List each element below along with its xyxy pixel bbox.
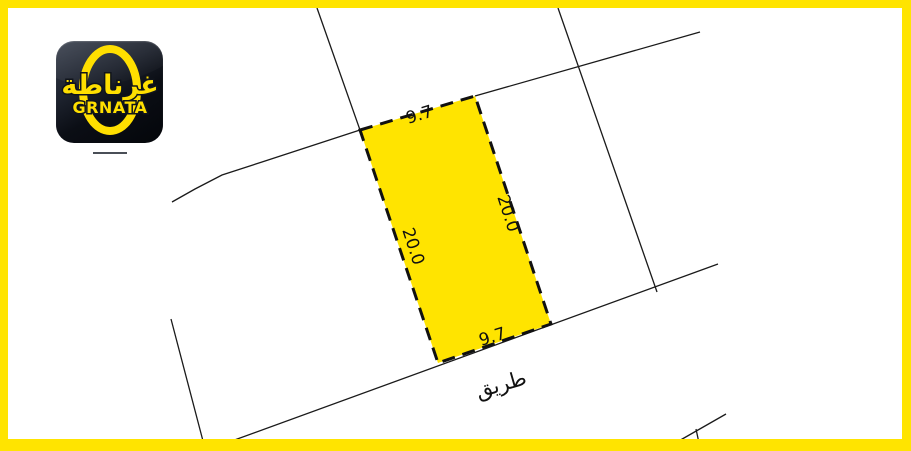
grnata-logo-icon: غرناطة GRNATA <box>56 41 163 143</box>
logo-block: غرناطة GRNATA <box>56 41 163 154</box>
grnata-app-icon: غرناطة GRNATA <box>56 41 163 143</box>
logo-arabic-text: غرناطة <box>61 70 158 101</box>
logo-divider-line <box>93 152 127 154</box>
logo-latin-text: GRNATA <box>72 98 147 117</box>
